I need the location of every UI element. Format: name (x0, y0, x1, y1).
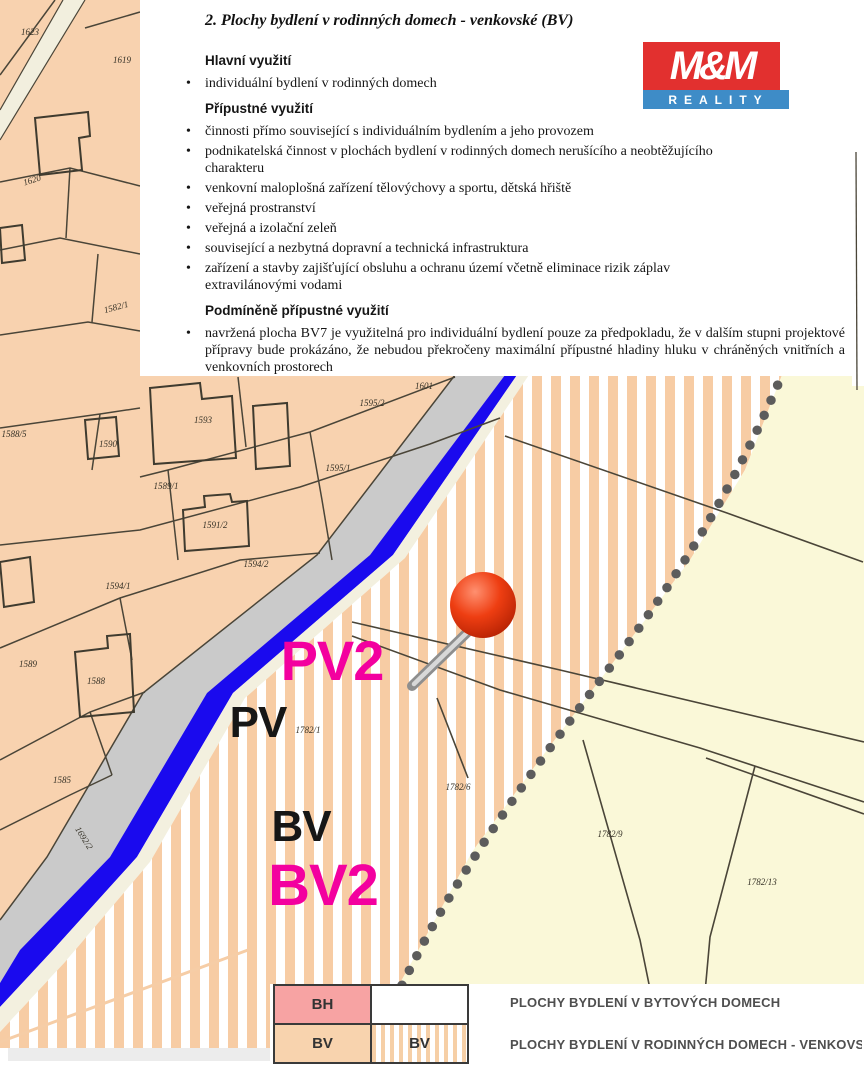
doc-block: Podmíněně přípustné využití (205, 303, 845, 318)
doc-block-text: zařízení a stavby zajišťující obsluhu a … (205, 261, 670, 293)
doc-block-text: veřejná prostranství (205, 201, 316, 216)
right-sliver (852, 0, 864, 386)
doc-block-text: Přípustné využití (205, 101, 313, 116)
mm-reality-logo: M&M REALITY (643, 42, 789, 109)
doc-block: zařízení a stavby zajišťující obsluhu a … (205, 260, 765, 294)
logo-mm-mark: M&M (643, 42, 780, 90)
doc-block: navržená plocha BV7 je využitelná pro in… (205, 325, 845, 376)
logo-reality-bar: REALITY (643, 90, 789, 109)
map-legend: BH BV BV PLOCHY BYDLENÍ V BYTOVÝCH DOMEC… (270, 984, 864, 1080)
regulation-document-panel: 2. Plochy bydlení v rodinných domech - v… (140, 0, 852, 376)
document-title: 2. Plochy bydlení v rodinných domech - v… (205, 12, 845, 30)
doc-block-text: venkovní maloplošná zařízení tělovýchovy… (205, 181, 571, 196)
doc-block-text: podnikatelská činnost v plochách bydlení… (205, 144, 713, 176)
doc-block-text: Podmíněně přípustné využití (205, 303, 389, 318)
legend-sample-bv: BV (371, 1024, 468, 1063)
legend-label-bv: PLOCHY BYDLENÍ V RODINNÝCH DOMECH - VENK… (510, 1037, 862, 1052)
doc-block-text: Hlavní využití (205, 53, 291, 68)
legend-sample-bh (371, 985, 468, 1024)
legend-label-bh: PLOCHY BYDLENÍ V BYTOVÝCH DOMECH (510, 995, 862, 1010)
doc-block-text: činnosti přímo související s individuáln… (205, 124, 594, 139)
doc-block: související a nezbytná dopravní a techni… (205, 240, 765, 257)
doc-block: veřejná prostranství (205, 200, 765, 217)
doc-block: venkovní maloplošná zařízení tělovýchovy… (205, 180, 765, 197)
legend-code-bh: BH (274, 985, 371, 1024)
doc-block-text: veřejná a izolační zeleň (205, 221, 337, 236)
doc-block-text: navržená plocha BV7 je využitelná pro in… (205, 326, 845, 375)
legend-row-bv: BV BV (274, 1024, 468, 1063)
legend-code-bv: BV (274, 1024, 371, 1063)
legend-table: BH BV BV (273, 984, 469, 1064)
doc-block-text: individuální bydlení v rodinných domech (205, 76, 437, 91)
zoning-map-page: 1623161916201582/116011595/2159315901588… (0, 0, 864, 1080)
doc-block: činnosti přímo související s individuáln… (205, 123, 765, 140)
doc-block: podnikatelská činnost v plochách bydlení… (205, 143, 765, 177)
doc-block-text: související a nezbytná dopravní a techni… (205, 241, 528, 256)
legend-row-bh: BH (274, 985, 468, 1024)
doc-block: veřejná a izolační zeleň (205, 220, 765, 237)
